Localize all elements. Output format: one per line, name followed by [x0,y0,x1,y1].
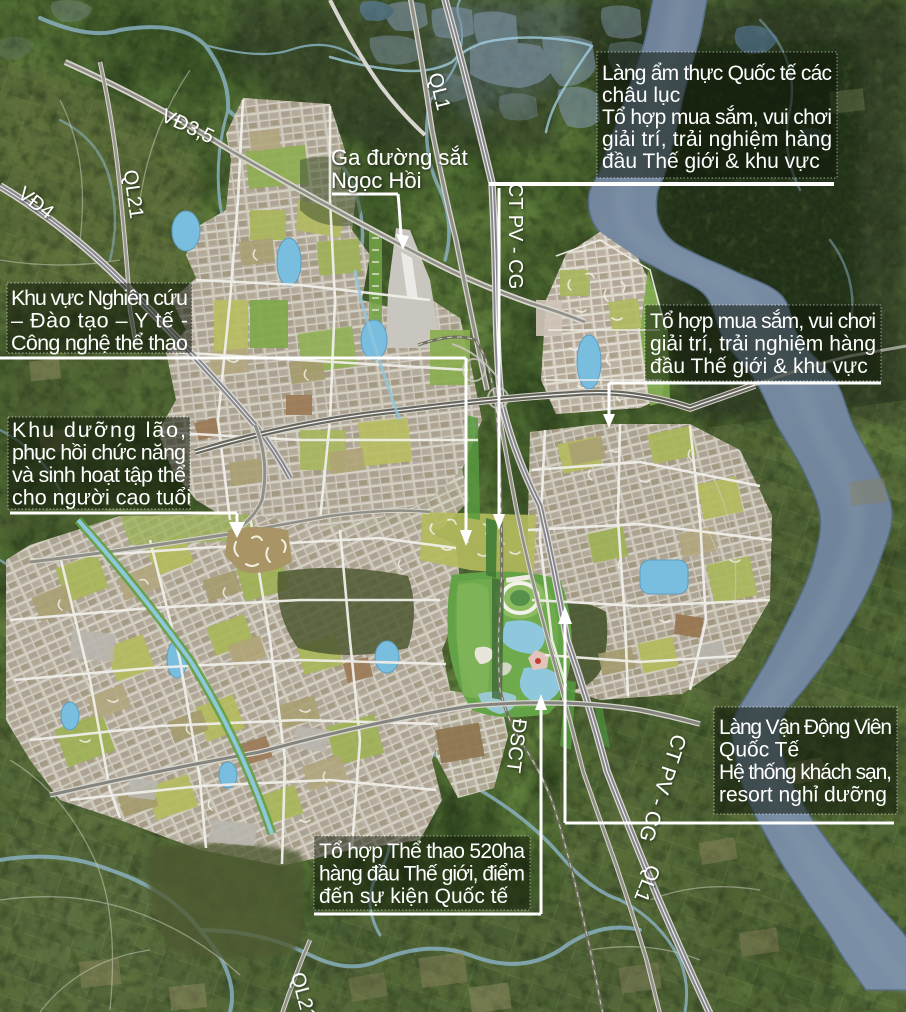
svg-text:giải trí, trải nghiệm hàng: giải trí, trải nghiệm hàng [602,128,832,151]
svg-text:Làng ẩm thực Quốc tế các: Làng ẩm thực Quốc tế các [602,62,832,85]
svg-text:Làng Vận Động Viên: Làng Vận Động Viên [719,716,892,739]
svg-text:Khu dưỡng lão,: Khu dưỡng lão, [12,418,186,442]
svg-text:Tổ hợp Thể thao 520ha: Tổ hợp Thể thao 520ha [319,840,525,863]
svg-text:giải trí, trải nghiệm hàng: giải trí, trải nghiệm hàng [650,333,876,356]
svg-text:hàng đầu Thế giới, điểm: hàng đầu Thế giới, điểm [319,863,525,886]
svg-text:– Đào tạo – Y tế -: – Đào tạo – Y tế - [11,309,188,333]
svg-text:phục hồi chức năng: phục hồi chức năng [12,441,186,465]
svg-text:Ngọc Hồi: Ngọc Hồi [331,168,421,193]
svg-text:Hệ thống khách sạn,: Hệ thống khách sạn, [719,761,892,784]
svg-text:Khu vực Nghiên cứu: Khu vực Nghiên cứu [11,286,188,310]
svg-text:Tổ hợp mua sắm, vui chơi: Tổ hợp mua sắm, vui chơi [602,106,832,129]
svg-text:Quốc Tế: Quốc Tế [719,739,799,762]
svg-text:đầu Thế giới & khu vực: đầu Thế giới & khu vực [650,355,868,378]
svg-text:Tổ hợp mua sắm, vui chơi: Tổ hợp mua sắm, vui chơi [650,310,876,333]
svg-text:Ga đường sắt: Ga đường sắt [331,145,468,170]
svg-text:resort nghỉ dưỡng: resort nghỉ dưỡng [719,784,887,807]
svg-text:Công nghệ thể thao: Công nghệ thể thao [11,331,188,355]
svg-text:CT PV - CG: CT PV - CG [504,183,526,289]
svg-text:cho người cao tuổi: cho người cao tuổi [12,486,191,510]
svg-text:đến sự kiện Quốc tế: đến sự kiện Quốc tế [319,885,508,908]
svg-text:và sinh hoạt tập thể: và sinh hoạt tập thể [12,463,186,487]
svg-text:châu lục: châu lục [602,84,680,107]
svg-text:đầu Thế giới & khu vực: đầu Thế giới & khu vực [602,150,820,173]
